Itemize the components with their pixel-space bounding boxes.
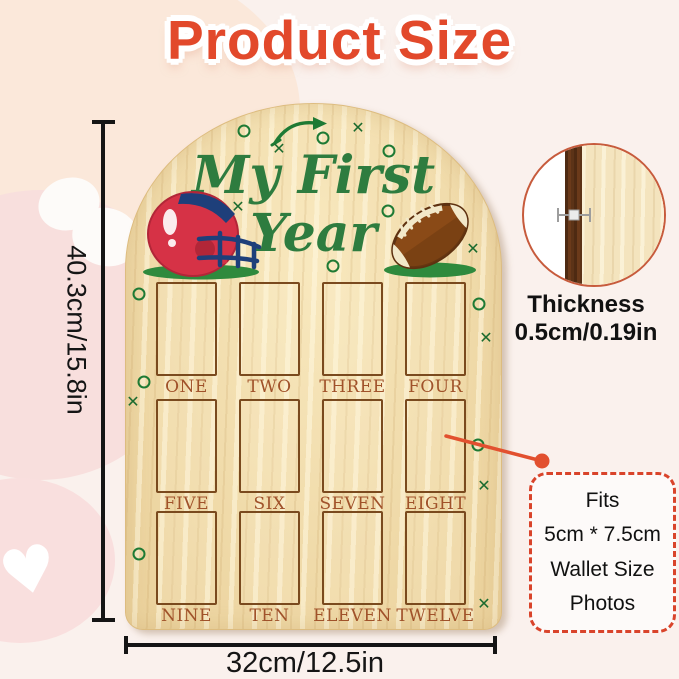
- photo-slot: [322, 511, 383, 605]
- photo-slot: [239, 282, 300, 376]
- width-dimension-label: 32cm/12.5in: [135, 648, 475, 678]
- photo-slot-label: ELEVEN: [310, 606, 395, 626]
- fits-note-line: Fits: [534, 489, 671, 513]
- x-mark-icon: ✕: [466, 241, 479, 257]
- o-mark-icon: [133, 548, 146, 561]
- thickness-measure-icon: [557, 208, 591, 222]
- o-mark-icon: [238, 125, 251, 138]
- photo-slot-label: TEN: [227, 606, 312, 626]
- photo-slot-label: NINE: [144, 606, 229, 626]
- photo-slot: [239, 511, 300, 605]
- board-face-wood: [582, 145, 664, 285]
- photo-slot-label: THREE: [310, 377, 395, 397]
- photo-slot-cell: ELEVEN: [322, 511, 383, 605]
- photo-slot: [405, 511, 466, 605]
- fits-note-line: 5cm * 7.5cm: [534, 523, 671, 547]
- photo-slot: [156, 282, 217, 376]
- o-mark-icon: [383, 145, 396, 158]
- x-mark-icon: ✕: [272, 141, 285, 157]
- thickness-label: Thickness: [498, 291, 674, 319]
- photo-slot-cell: TWELVE: [405, 511, 466, 605]
- fits-note-line: Wallet Size: [534, 558, 671, 582]
- photo-slot-cell: TWO: [239, 282, 300, 376]
- o-mark-icon: [327, 260, 340, 273]
- o-mark-icon: [473, 298, 486, 311]
- photo-slot-label: ONE: [144, 377, 229, 397]
- fits-note-line: Photos: [534, 592, 671, 616]
- photo-slot: [239, 399, 300, 493]
- football-helmet-icon: [141, 189, 266, 281]
- photo-slot: [405, 282, 466, 376]
- x-mark-icon: ✕: [477, 478, 490, 494]
- photo-slot: [156, 399, 217, 493]
- height-dimension-line: [101, 122, 105, 620]
- photo-slot: [156, 511, 217, 605]
- o-mark-icon: [133, 288, 146, 301]
- photo-slot-cell: SEVEN: [322, 399, 383, 493]
- photo-slot-cell: ONE: [156, 282, 217, 376]
- thickness-value: 0.5cm/0.19in: [498, 319, 674, 347]
- photo-slot: [322, 282, 383, 376]
- product-size-infographic: ♥ Product Size 40.3cm/15.8in My First Ye…: [0, 0, 679, 679]
- o-mark-icon: [317, 132, 330, 145]
- photo-slot-label: TWO: [227, 377, 312, 397]
- page-title: Product Size: [0, 8, 679, 72]
- x-mark-icon: ✕: [231, 199, 244, 215]
- photo-slot-cell: FOUR: [405, 282, 466, 376]
- height-dimension-cap-bottom: [92, 618, 115, 622]
- x-mark-icon: ✕: [477, 596, 490, 612]
- photo-slot: [322, 399, 383, 493]
- photo-slot-cell: NINE: [156, 511, 217, 605]
- photo-slot-cell: THREE: [322, 282, 383, 376]
- american-football-icon: [382, 196, 479, 280]
- photo-slot-label: TWELVE: [393, 606, 478, 626]
- photo-slot-cell: SIX: [239, 399, 300, 493]
- callout-line: [440, 428, 552, 472]
- fits-note-box: Fits 5cm * 7.5cm Wallet Size Photos: [529, 472, 676, 633]
- x-mark-icon: ✕: [351, 120, 364, 136]
- x-mark-icon: ✕: [479, 330, 492, 346]
- x-mark-icon: ✕: [126, 394, 139, 410]
- height-dimension-label: 40.3cm/15.8in: [61, 245, 92, 415]
- thickness-detail-circle: [522, 143, 666, 287]
- width-dimension-cap-right: [493, 636, 497, 654]
- photo-slot-cell: FIVE: [156, 399, 217, 493]
- height-dimension-cap-top: [92, 120, 115, 124]
- photo-slot-label: FOUR: [393, 377, 478, 397]
- o-mark-icon: [382, 205, 395, 218]
- wooden-photo-board: My First Year: [125, 103, 502, 630]
- width-dimension-cap-left: [124, 636, 128, 654]
- photo-slot-cell: TEN: [239, 511, 300, 605]
